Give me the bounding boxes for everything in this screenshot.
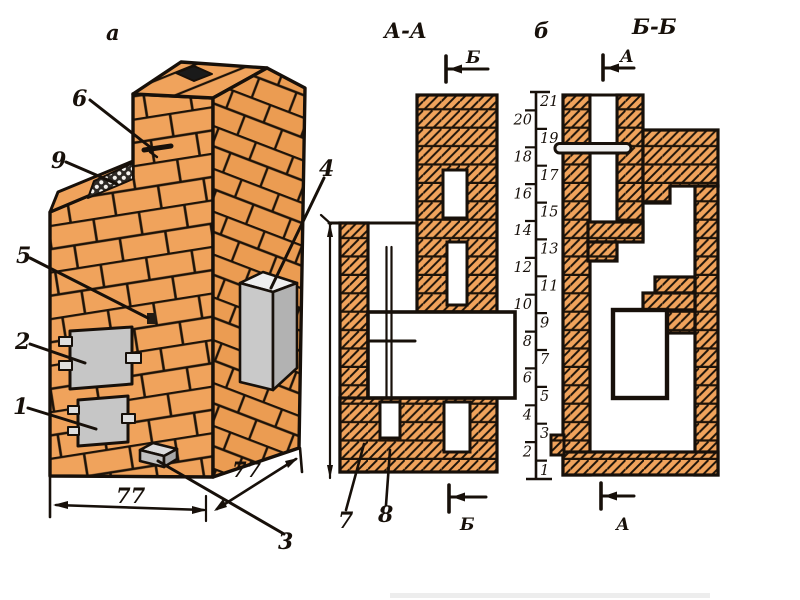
ruler-row-15: 15: [540, 205, 558, 221]
ruler-row-10: 10: [514, 297, 532, 313]
ruler-row-6: 6: [523, 371, 532, 387]
callout-3: 3: [278, 529, 293, 555]
diagram-canvas: 77 77 6 9 5 2 1 3 4 а А-А: [0, 0, 800, 600]
aa-flue-slot-bottom-left: [380, 402, 400, 438]
section-aa: А-А Б Б: [321, 18, 515, 535]
aa-flue-slot-mid: [447, 242, 467, 305]
bb-left-notch: [551, 435, 564, 455]
callout-1: 1: [13, 394, 28, 420]
course-ruler: 1 2 3 4 5 6 7 8 9 10 11 12 13 14 15 16 1…: [513, 91, 560, 479]
ruler-row-18: 18: [514, 149, 532, 165]
bb-bottom-masonry: [563, 452, 718, 475]
bb-left-step: [588, 242, 617, 261]
stove-perspective-view: 77 77 6 9 5 2 1 3 4 а: [13, 20, 334, 555]
bb-flue-column: [617, 95, 643, 240]
section-bb-title: Б-Б: [631, 14, 677, 39]
callout-2: 2: [14, 329, 30, 355]
ruler-row-9: 9: [540, 315, 549, 331]
callout-6: 6: [72, 86, 87, 112]
ruler-row-17: 17: [540, 168, 559, 184]
view-b-label: б: [534, 18, 549, 43]
aa-bottom-masonry: [340, 398, 497, 472]
cut-letter-a-bottom: А: [614, 515, 630, 535]
ruler-row-16: 16: [514, 186, 532, 202]
cleanout-brick: [140, 443, 177, 467]
bb-right-ledge-foot: [667, 310, 695, 333]
callout-4: 4: [319, 156, 334, 182]
section-bb: б Б-Б А А: [534, 14, 718, 535]
bb-right-wall: [695, 186, 718, 475]
section-aa-title: А-А: [382, 18, 427, 43]
ash-door: [68, 396, 135, 446]
cut-letter-b-top: Б: [465, 48, 481, 68]
cut-marker-a-bottom: А: [601, 483, 634, 535]
ruler-row-8: 8: [523, 334, 532, 350]
view-a-label: а: [106, 20, 120, 45]
bb-left-ledge: [588, 222, 643, 242]
aa-flue-slot-bottom-right: [444, 402, 470, 452]
cut-letter-a-top: А: [618, 47, 634, 67]
callout-8: 8: [377, 502, 393, 528]
ruler-row-20: 20: [513, 113, 532, 129]
ruler-row-5: 5: [540, 389, 549, 405]
ruler-row-11: 11: [540, 279, 558, 295]
front-width-value: 77: [116, 483, 146, 508]
ruler-row-21: 21: [539, 94, 558, 110]
ruler-row-7: 7: [540, 352, 550, 368]
cut-marker-b-top: Б: [446, 48, 488, 82]
aa-height-line: [321, 215, 333, 479]
callout-9: 9: [51, 148, 66, 174]
aa-fire-chamber: [368, 312, 515, 398]
ruler-row-3: 3: [540, 426, 549, 442]
bb-damper: [555, 144, 631, 154]
callout-5: 5: [16, 243, 31, 269]
ruler-row-12: 12: [514, 260, 532, 276]
ruler-row-4: 4: [522, 408, 532, 424]
cut-marker-a-top: А: [603, 47, 634, 80]
side-depth-value: 77: [232, 457, 262, 482]
cut-letter-b-bottom: Б: [459, 515, 475, 535]
callout-7: 7: [338, 508, 354, 534]
ruler-row-13: 13: [540, 242, 558, 258]
bb-flue-slot: [590, 95, 617, 148]
stove-masonry-diagram: 77 77 6 9 5 2 1 3 4 а А-А: [0, 0, 800, 600]
caption-remnant: [390, 593, 710, 598]
ruler-row-2: 2: [522, 444, 532, 460]
side-duct-box: [240, 272, 297, 390]
ruler-row-1: 1: [540, 463, 549, 479]
bb-firebox-outline: [613, 310, 667, 398]
ruler-row-14: 14: [514, 223, 532, 239]
bb-right-ledge-lower: [643, 293, 695, 310]
front-width-dimension: 77: [53, 483, 207, 514]
bb-right-ledge-upper: [655, 277, 695, 293]
cut-marker-b-bottom: Б: [449, 485, 486, 535]
aa-flue-slot-upper: [443, 170, 467, 218]
